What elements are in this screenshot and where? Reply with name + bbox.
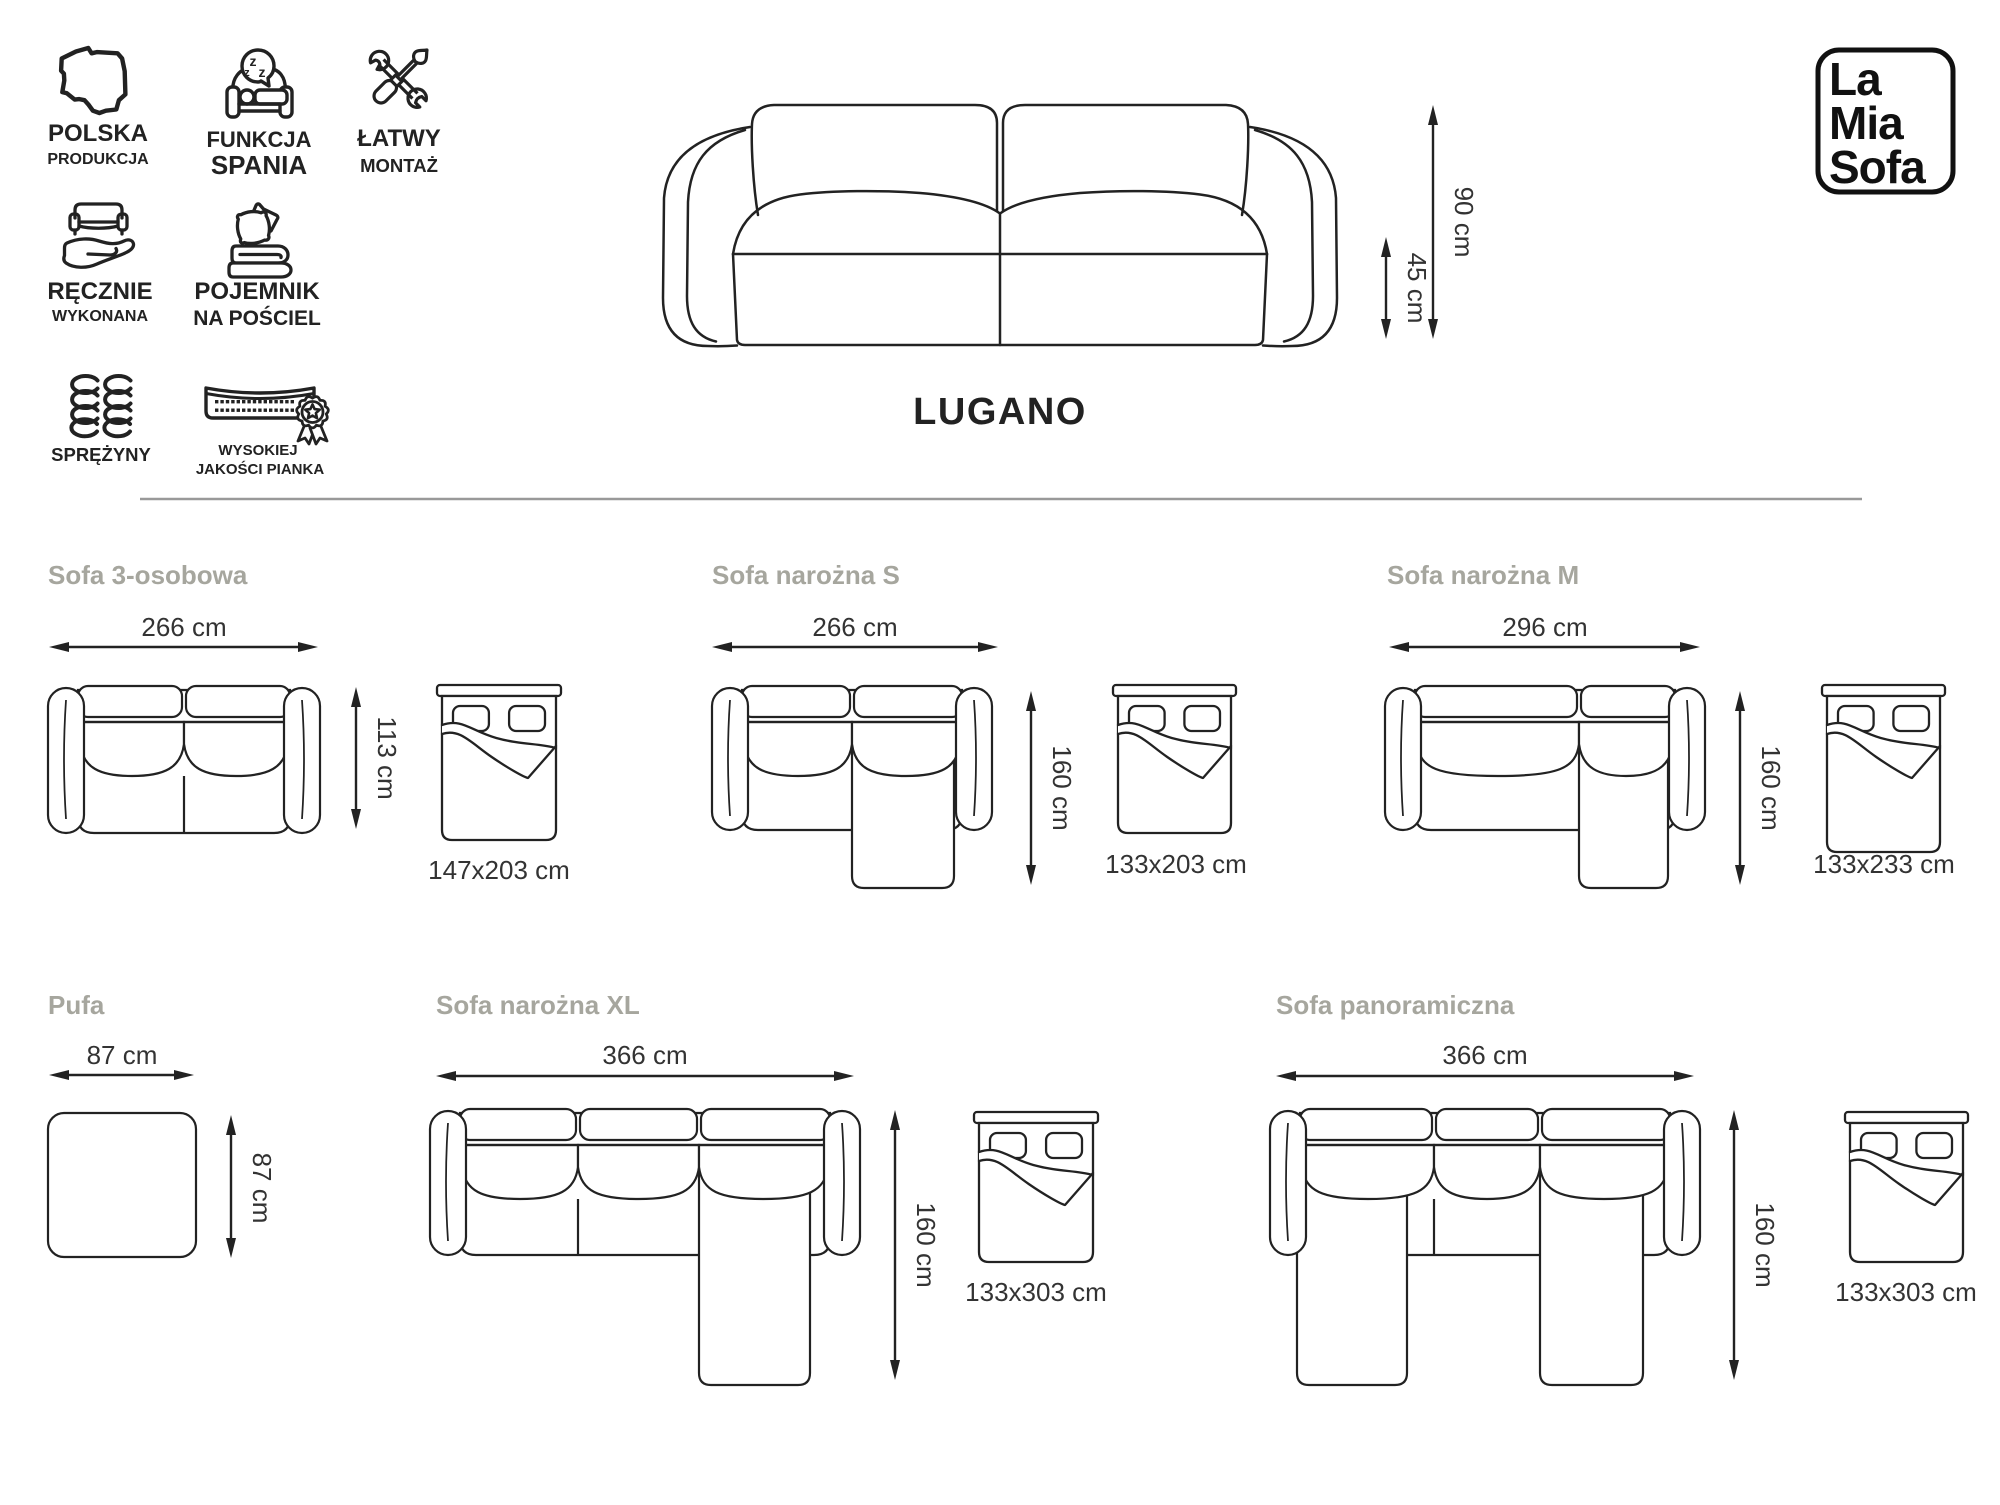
svg-text:MONTAŻ: MONTAŻ bbox=[360, 155, 438, 176]
svg-text:366 cm: 366 cm bbox=[602, 1040, 687, 1070]
svg-text:RĘCZNIE: RĘCZNIE bbox=[47, 278, 152, 305]
svg-text:133x233 cm: 133x233 cm bbox=[1813, 849, 1955, 879]
svg-text:160 cm: 160 cm bbox=[1750, 1202, 1780, 1287]
svg-text:PRODUKCJA: PRODUKCJA bbox=[47, 151, 149, 168]
svg-text:Sofa panoramiczna: Sofa panoramiczna bbox=[1276, 990, 1515, 1020]
svg-text:POJEMNIK: POJEMNIK bbox=[194, 278, 320, 305]
svg-text:87 cm: 87 cm bbox=[87, 1040, 158, 1070]
svg-text:z: z bbox=[259, 64, 266, 80]
svg-text:LUGANO: LUGANO bbox=[913, 391, 1087, 433]
svg-text:z: z bbox=[244, 67, 250, 79]
svg-text:Sofa: Sofa bbox=[1829, 141, 1926, 193]
svg-text:160 cm: 160 cm bbox=[911, 1202, 941, 1287]
svg-text:NA POŚCIEL: NA POŚCIEL bbox=[193, 306, 321, 330]
svg-text:160 cm: 160 cm bbox=[1756, 745, 1786, 830]
svg-text:45 cm: 45 cm bbox=[1402, 253, 1432, 324]
svg-text:133x303 cm: 133x303 cm bbox=[965, 1277, 1107, 1307]
svg-text:Sofa narożna XL: Sofa narożna XL bbox=[436, 990, 640, 1020]
svg-text:160 cm: 160 cm bbox=[1047, 745, 1077, 830]
svg-text:FUNKCJA: FUNKCJA bbox=[206, 127, 311, 152]
svg-text:133x303 cm: 133x303 cm bbox=[1835, 1277, 1977, 1307]
svg-text:113 cm: 113 cm bbox=[372, 716, 402, 799]
svg-text:ŁATWY: ŁATWY bbox=[357, 125, 441, 152]
svg-text:Sofa 3-osobowa: Sofa 3-osobowa bbox=[48, 560, 248, 590]
svg-text:Pufa: Pufa bbox=[48, 990, 105, 1020]
svg-text:SPANIA: SPANIA bbox=[211, 150, 308, 180]
svg-text:WYSOKIEJ: WYSOKIEJ bbox=[218, 442, 297, 459]
svg-text:266 cm: 266 cm bbox=[141, 612, 226, 642]
svg-text:Sofa narożna S: Sofa narożna S bbox=[712, 560, 900, 590]
svg-text:147x203 cm: 147x203 cm bbox=[428, 855, 570, 885]
svg-text:SPRĘŻYNY: SPRĘŻYNY bbox=[51, 444, 151, 465]
svg-text:Sofa narożna M: Sofa narożna M bbox=[1387, 560, 1579, 590]
svg-text:133x203 cm: 133x203 cm bbox=[1105, 849, 1247, 879]
svg-text:296 cm: 296 cm bbox=[1502, 612, 1587, 642]
svg-text:JAKOŚCI PIANKA: JAKOŚCI PIANKA bbox=[196, 460, 325, 478]
svg-text:366 cm: 366 cm bbox=[1442, 1040, 1527, 1070]
svg-text:WYKONANA: WYKONANA bbox=[52, 308, 148, 325]
svg-text:87 cm: 87 cm bbox=[247, 1153, 277, 1224]
svg-text:z: z bbox=[250, 53, 257, 69]
svg-text:90 cm: 90 cm bbox=[1449, 187, 1479, 258]
svg-text:POLSKA: POLSKA bbox=[48, 120, 148, 147]
svg-text:266 cm: 266 cm bbox=[812, 612, 897, 642]
